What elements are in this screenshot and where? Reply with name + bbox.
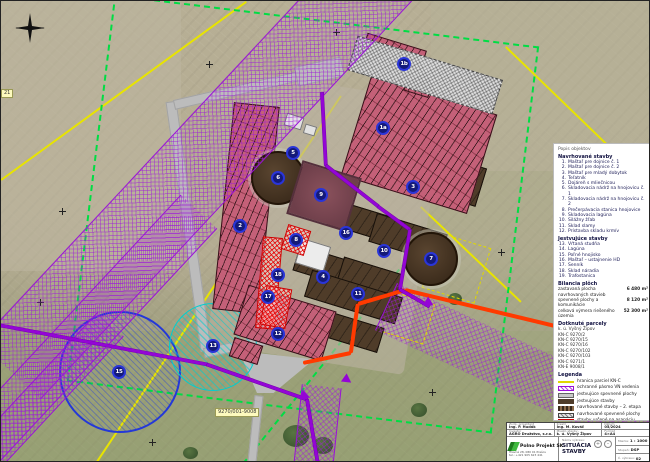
map-marker: 8: [289, 233, 303, 247]
title-block-cell: Formát4×A4: [602, 430, 650, 436]
map-marker: 9: [314, 188, 328, 202]
balance-row: celková výmera riešeného územia52 300 m²: [558, 309, 648, 320]
map-marker: 18: [271, 268, 285, 282]
stripe-dark-swatch: [558, 406, 574, 411]
company-block: Polno Projekt SK Hlavná 28, 080 01 Prešo…: [507, 437, 559, 462]
legend-swatch-list: hranica parciel KN-Cochranné pásmo VN ve…: [558, 380, 648, 421]
drawing-number: 02: [636, 456, 641, 461]
company-address-line2: tel.: +421 905 623 441: [509, 454, 556, 457]
stamp-plus-icon: +: [594, 440, 602, 448]
map-marker: 16: [339, 226, 353, 240]
map-marker: 15: [112, 365, 126, 379]
legend-item: jestvujúce stavby: [558, 399, 648, 404]
stage-label: Stupeň:: [618, 448, 630, 452]
survey-tick: [59, 208, 66, 215]
map-marker: 7: [424, 252, 438, 266]
balance-row: zastavaná plocha navrhovaných stavieb6 4…: [558, 287, 648, 298]
legend-item: stavby určené na asanáciu: [558, 419, 648, 421]
drawing-name-cell: Názov výkresu: SITUÁCIA STAVBY + –: [559, 437, 616, 462]
company-logo-icon: [509, 442, 518, 451]
map-marker: 17: [261, 290, 275, 304]
legend-item: hranica parciel KN-C: [558, 380, 648, 385]
map-marker: 1b: [397, 57, 411, 71]
site-plan-sheet: 21 9270/001-9008 1b1a2345678910111213151…: [0, 0, 650, 462]
list-item: 19.Trafostanica: [558, 274, 648, 279]
hatch-gray-swatch: [558, 413, 574, 418]
legend-item: ochranné pásmo VN vedenia: [558, 386, 648, 391]
map-marker: 10: [377, 244, 391, 258]
drawing-meta: Mierka: 1 : 1000 Stupeň: DSP Č. výkresu:…: [616, 437, 650, 462]
tree: [183, 447, 198, 459]
legend-item: navrhované stavby – 2. etapa: [558, 406, 648, 411]
stamp-area: + –: [594, 440, 612, 448]
map-marker: 1a: [376, 121, 390, 135]
map-marker: 13: [206, 339, 220, 353]
hatch-red-swatch: [558, 419, 574, 421]
map-marker: 6: [271, 171, 285, 185]
stamp-minus-icon: –: [604, 440, 612, 448]
parcel-number-label: 21: [1, 89, 13, 98]
legend-item: navrhované spevnené plochy: [558, 413, 648, 418]
solid-brown-swatch: [558, 399, 574, 404]
balance-list: zastavaná plocha navrhovaných stavieb6 4…: [558, 287, 648, 319]
map-marker: 12: [271, 327, 285, 341]
map-marker: 5: [286, 146, 300, 160]
map-marker: 11: [351, 287, 365, 301]
list-item: 7.Skladovacia nádrž na hnojovicu č. 2: [558, 197, 648, 208]
balance-row: spevnené plochy a komunikácie8 120 m²: [558, 298, 648, 309]
title-block-cell: KreslilIng. M. Kováč: [555, 423, 603, 429]
list-item: 12.Prístavba skladu krmív: [558, 229, 648, 234]
title-block-cell: Zodp. projektantIng. P. Hudák: [507, 423, 555, 429]
map-marker: 2: [233, 219, 247, 233]
existing-buildings-list: 13.Vŕtaná studňa14.Lagúna15.Poľné hnojis…: [558, 242, 648, 279]
corridor-label: 9270/001-9008: [215, 408, 259, 417]
legend-title: Legenda: [558, 372, 648, 378]
list-item: 6.Skladovacia nádrž na hnojovicu č. 1: [558, 186, 648, 197]
title-block-row1: Zodp. projektantIng. P. HudákKreslilIng.…: [507, 423, 650, 430]
map-marker: 4: [316, 270, 330, 284]
legend-item: jestvujúce spevnené plochy: [558, 393, 648, 398]
parcels-list: KN-C 9270/2KN-C 9270/15KN-C 9270/16KN-C …: [558, 333, 648, 371]
scale-value: 1 : 1000: [630, 438, 647, 443]
company-name: Polno Projekt SK: [520, 444, 563, 449]
title-block: Zodp. projektantIng. P. HudákKreslilIng.…: [506, 422, 650, 462]
map-marker: 3: [406, 180, 420, 194]
parcel-item: KN-E 9008/1: [558, 365, 648, 370]
title-block-cell: Dátum05/2024: [602, 423, 650, 429]
proposed-buildings-list: 1.Maštaľ pre dojnice č. 12.Maštaľ pre do…: [558, 160, 648, 234]
stage-value: DSP: [631, 447, 640, 452]
drawing-number-label: Č. výkresu:: [618, 456, 635, 460]
title-block-cell: InvestorAGRO Družstvo, s.r.o.: [507, 430, 555, 436]
title-block-row2: InvestorAGRO Družstvo, s.r.o.Miesto stav…: [507, 430, 650, 437]
legend-panel-heading: Popis objektov: [558, 147, 648, 152]
scale-label: Mierka:: [618, 439, 629, 443]
title-block-cell: Miesto stavbyk. ú. Vyšný Žipov: [555, 430, 603, 436]
line-yellow-swatch: [558, 381, 574, 383]
hatch-purple-swatch: [558, 386, 574, 391]
survey-tick: [149, 439, 156, 446]
north-arrow-icon: [15, 13, 45, 43]
aerial-map: 21 9270/001-9008 1b1a2345678910111213151…: [1, 1, 649, 461]
legend-panel: Popis objektov Navrhované stavby 1.Mašta…: [553, 143, 650, 421]
solid-gray-swatch: [558, 393, 574, 398]
